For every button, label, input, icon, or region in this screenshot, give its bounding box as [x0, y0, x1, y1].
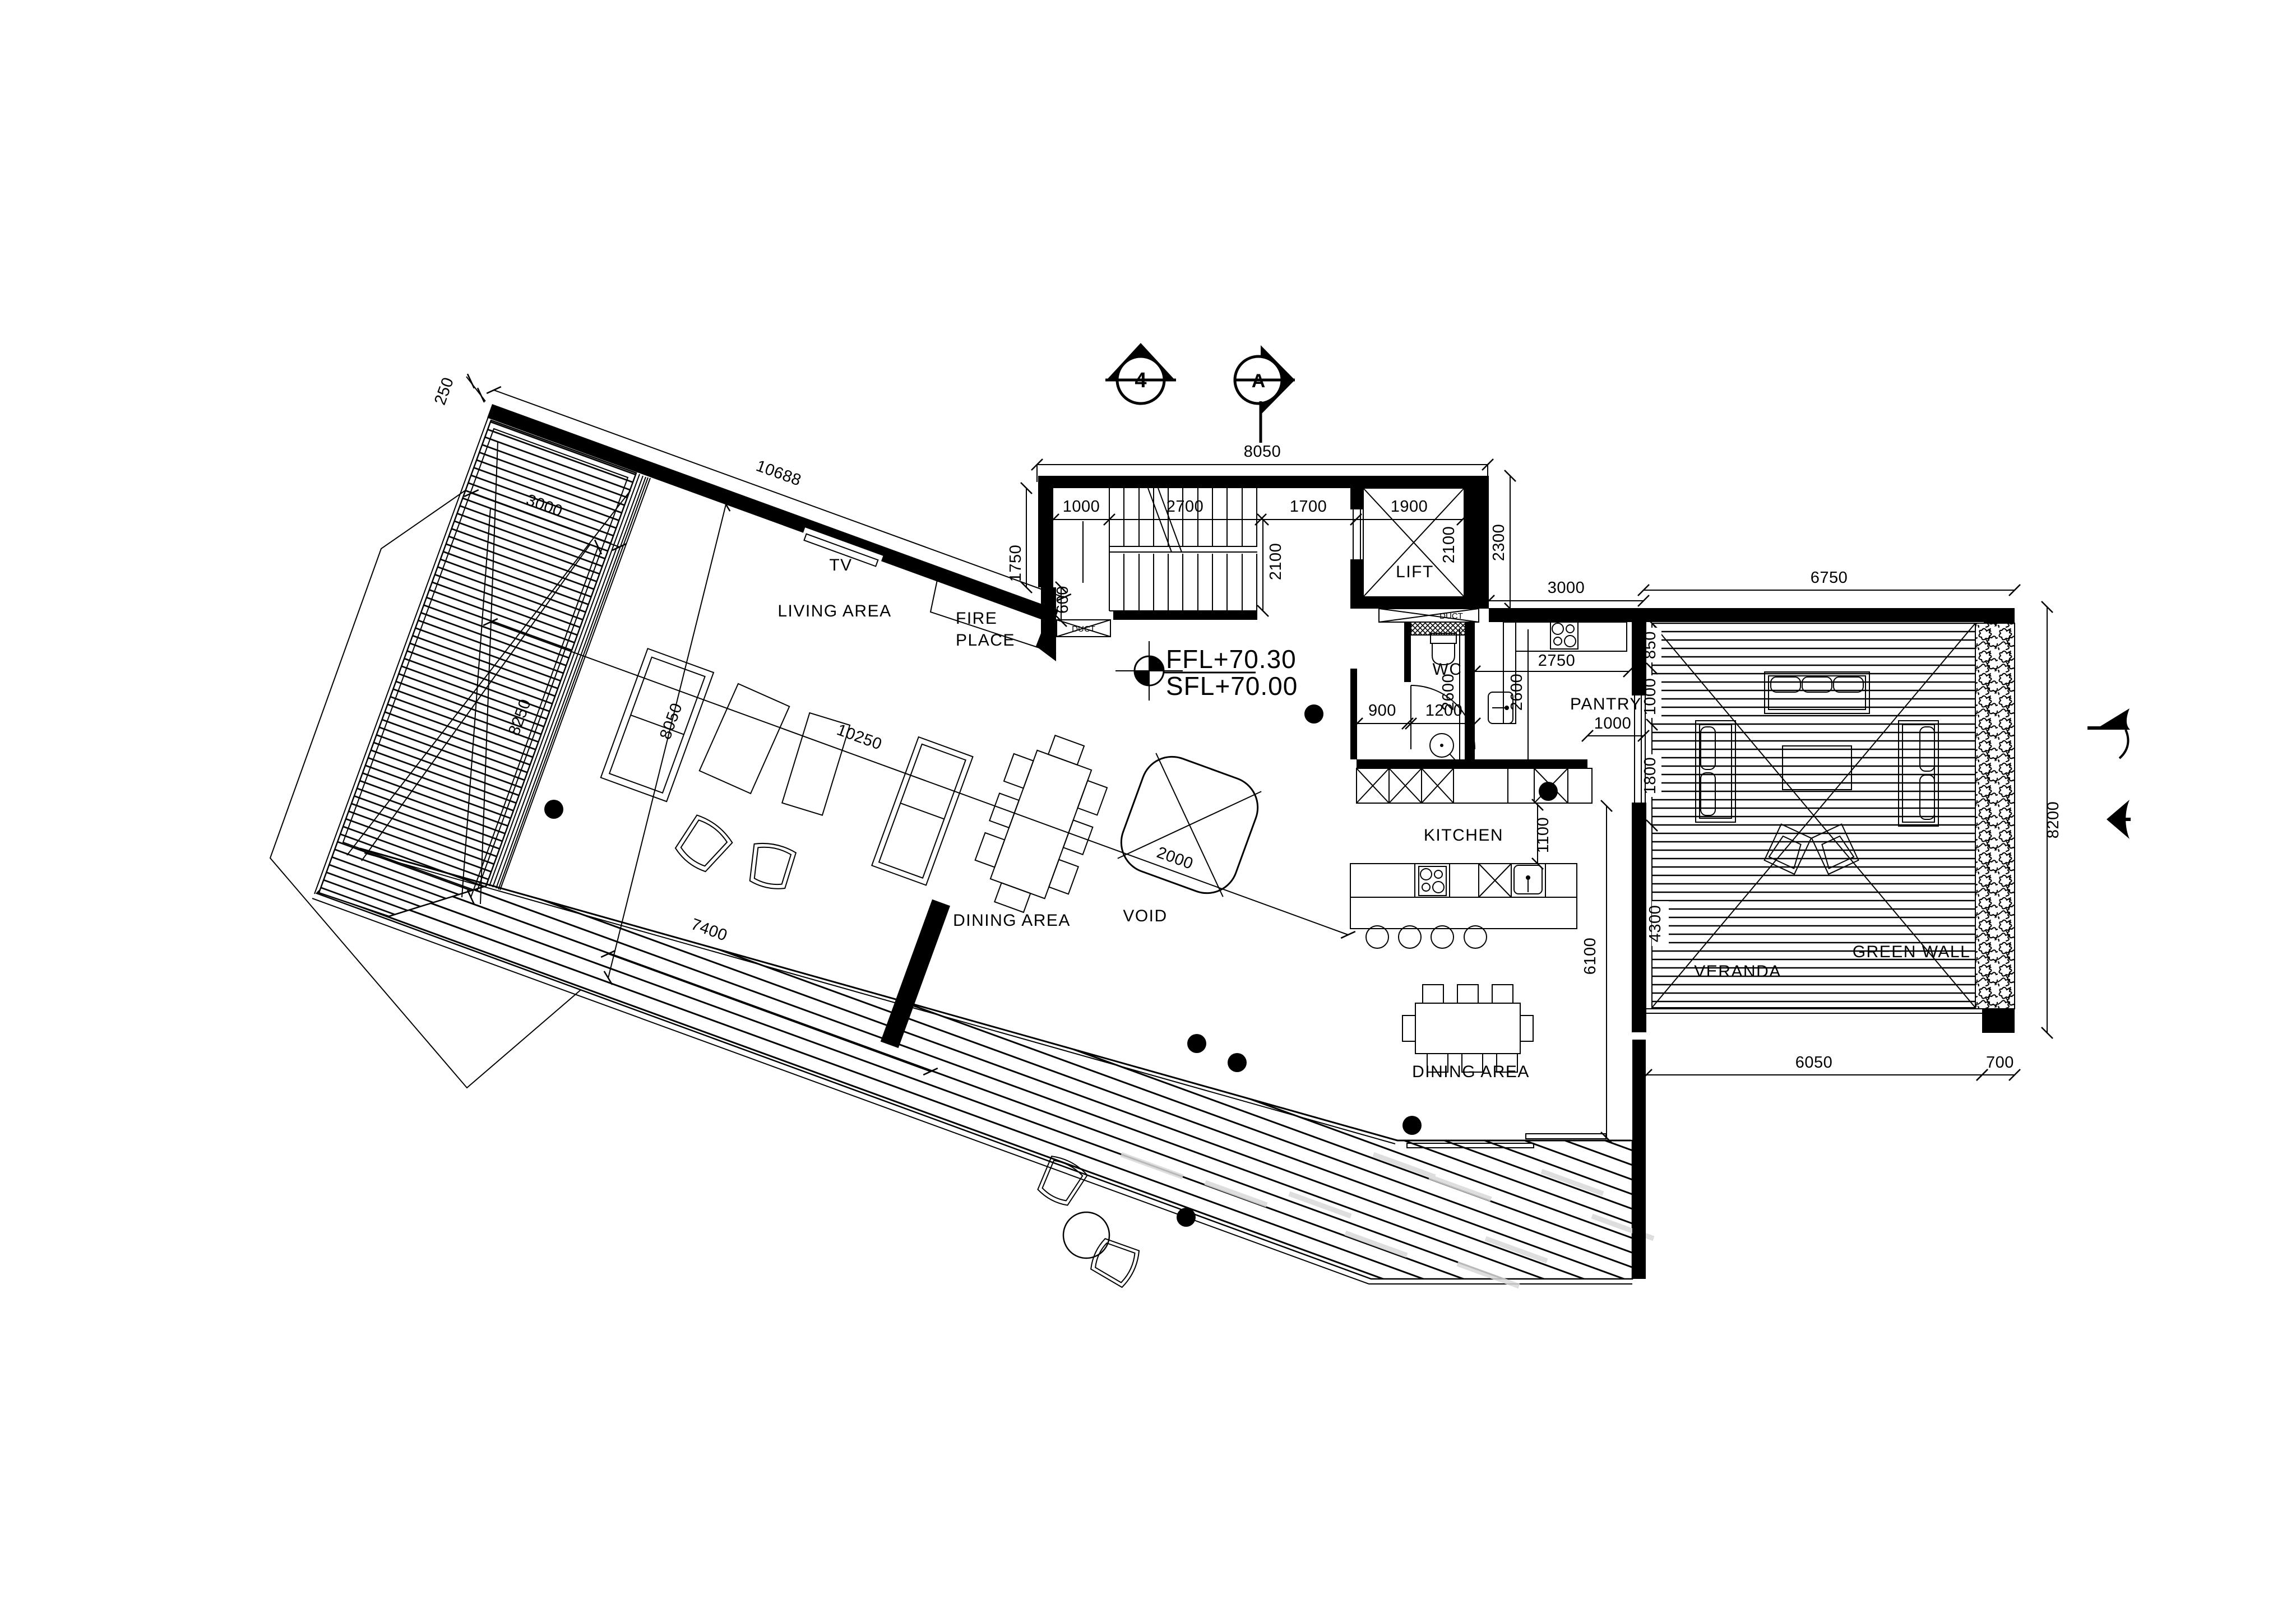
svg-text:1800: 1800: [1641, 757, 1659, 795]
svg-text:2750: 2750: [1538, 652, 1576, 670]
svg-text:3000: 3000: [1548, 579, 1585, 597]
svg-text:PLACE: PLACE: [956, 631, 1015, 650]
svg-text:VERANDA: VERANDA: [1694, 962, 1781, 981]
svg-text:LIFT: LIFT: [1396, 563, 1434, 581]
svg-text:6100: 6100: [1581, 938, 1599, 975]
svg-text:8200: 8200: [2044, 801, 2062, 839]
svg-text:2300: 2300: [1490, 524, 1508, 562]
svg-text:4300: 4300: [1646, 905, 1664, 943]
svg-text:DUCT: DUCT: [1072, 624, 1095, 634]
svg-text:LIVING AREA: LIVING AREA: [777, 602, 891, 620]
svg-text:A: A: [1252, 370, 1266, 392]
svg-text:1750: 1750: [1007, 545, 1025, 582]
svg-text:DINING AREA: DINING AREA: [953, 911, 1071, 930]
svg-text:VOID: VOID: [1123, 907, 1167, 925]
svg-text:2700: 2700: [1166, 498, 1204, 516]
svg-text:GREEN WALL: GREEN WALL: [1853, 943, 1971, 961]
svg-text:1000: 1000: [1641, 678, 1659, 716]
svg-text:FFL+70.30: FFL+70.30: [1166, 644, 1297, 674]
svg-text:4: 4: [1135, 369, 1146, 392]
svg-text:PANTRY: PANTRY: [1570, 695, 1642, 713]
svg-text:8050: 8050: [1244, 443, 1281, 461]
svg-text:TV: TV: [829, 556, 852, 574]
svg-text:1000: 1000: [1594, 715, 1632, 732]
svg-text:1900: 1900: [1391, 498, 1428, 516]
svg-text:1100: 1100: [1534, 817, 1552, 853]
svg-text:2100: 2100: [1440, 526, 1458, 564]
svg-text:2100: 2100: [1267, 543, 1285, 581]
svg-text:1700: 1700: [1290, 498, 1327, 516]
svg-text:SFL+70.00: SFL+70.00: [1166, 671, 1298, 701]
svg-text:850: 850: [1641, 631, 1659, 659]
svg-text:2600: 2600: [1508, 674, 1526, 711]
svg-text:KITCHEN: KITCHEN: [1424, 826, 1503, 845]
svg-text:DUCT: DUCT: [1439, 611, 1463, 621]
svg-text:900: 900: [1368, 702, 1396, 720]
svg-text:2600: 2600: [1439, 674, 1457, 711]
svg-text:1000: 1000: [1063, 498, 1100, 516]
svg-text:600: 600: [1054, 586, 1072, 614]
svg-text:DINING AREA: DINING AREA: [1412, 1063, 1530, 1081]
svg-text:FIRE: FIRE: [956, 609, 997, 628]
svg-text:6050: 6050: [1795, 1054, 1833, 1072]
svg-text:700: 700: [1986, 1054, 2014, 1072]
svg-text:6750: 6750: [1811, 569, 1848, 587]
